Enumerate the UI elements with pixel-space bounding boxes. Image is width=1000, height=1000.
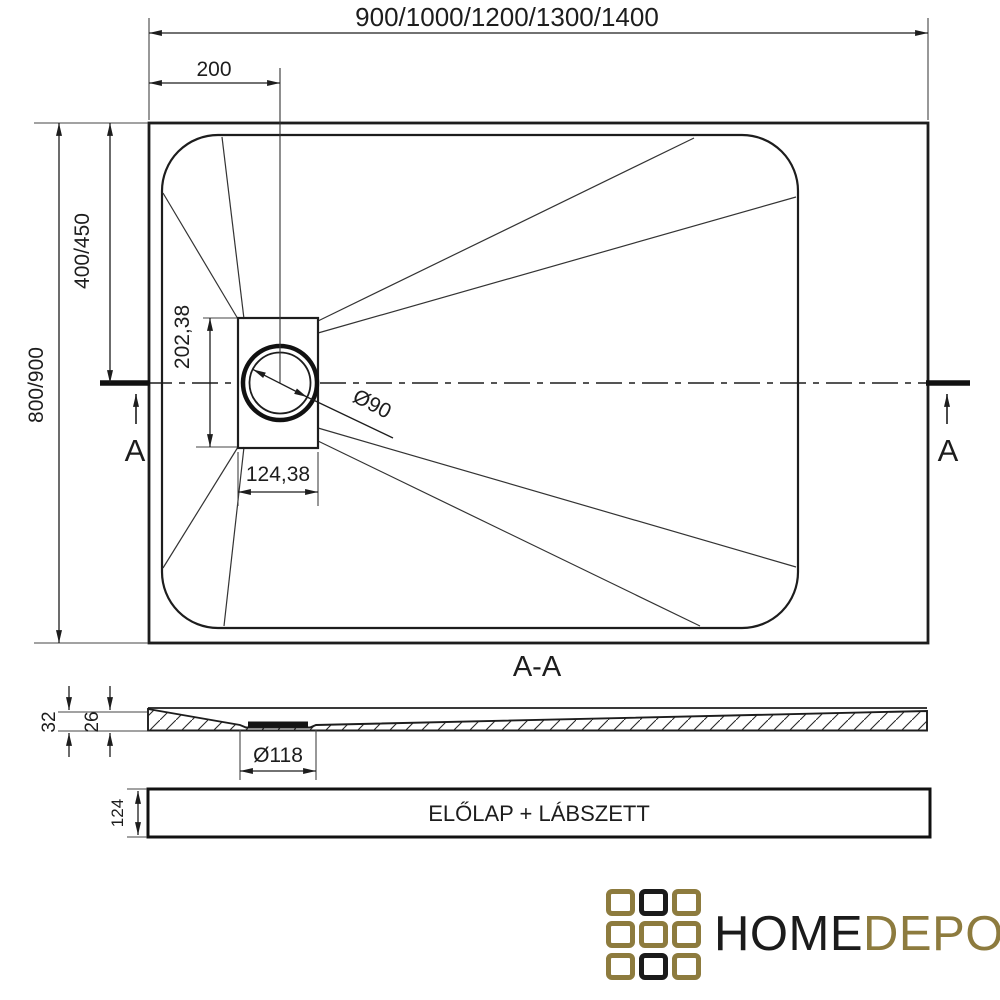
dim-drain-offset: 200 [149,58,280,83]
crease-line [318,441,700,626]
logo-word-home: HOME [714,907,863,961]
dim-thickness-group: 32 26 [39,686,147,757]
tray-basin-outline [162,135,798,628]
logo-grid-cell [606,921,635,948]
crease-line [318,138,694,321]
dim-overall-length-label: 900/1000/1200/1300/1400 [355,2,659,32]
logo-grid-cell [672,921,701,948]
dim-recess-diameter: Ø118 [240,730,316,780]
logo-grid-cell [639,921,668,948]
dim-width-half-label: 400/450 [71,213,94,289]
dim-drain-offset-label: 200 [196,58,231,81]
dim-drain-unit-height: 202,38 [171,305,237,447]
section-view: A-A 32 26 Ø118 [39,651,927,780]
section-marker-label-right: A [938,433,959,468]
section-title: A-A [513,651,562,683]
panel-view: ELŐLAP + LÁBSZETT 124 [108,789,930,837]
dim-panel-height-label: 124 [108,799,127,827]
crease-line [163,447,238,568]
dim-width-total-label: 800/900 [25,347,48,423]
dim-drain-unit-height-label: 202,38 [171,305,194,369]
dim-inner-thickness-label: 26 [82,711,103,732]
section-marker-label-left: A [125,433,146,468]
dim-drain-diameter-label: Ø90 [349,385,395,424]
dim-recess-diameter-label: Ø118 [253,744,303,767]
logo-grid-cell [606,889,635,916]
brand-logo: HOMEDEPO [606,889,1000,980]
dim-drain-diameter: Ø90 [253,370,395,439]
crease-line [318,197,796,333]
crease-line [163,193,238,319]
logo-grid-cell [639,953,668,980]
dim-drain-unit-width-label: 124,38 [246,463,310,486]
logo-grid-icon [606,889,701,980]
logo-grid-cell [639,889,668,916]
crease-line [318,428,796,567]
slope-crease-lines [163,137,796,626]
drawing-canvas: A A 900/1000/1200/1300/1400 200 800/900 … [0,0,1000,1000]
panel-label: ELŐLAP + LÁBSZETT [428,801,650,826]
logo-wordmark: HOMEDEPO [714,910,1000,959]
dim-drain-unit-width: 124,38 [238,452,318,506]
logo-grid-cell [606,953,635,980]
dim-edge-thickness-label: 32 [39,711,60,732]
shower-tray-technical-drawing: A A 900/1000/1200/1300/1400 200 800/900 … [0,0,1000,1000]
dim-overall-length: 900/1000/1200/1300/1400 [149,2,928,120]
crease-line [222,137,244,319]
logo-word-depo: DEPO [863,907,1000,961]
logo-grid-cell [672,889,701,916]
drain-cover-bar [248,722,308,728]
crease-line [224,447,244,626]
logo-grid-cell [672,953,701,980]
plan-view: A A 900/1000/1200/1300/1400 200 800/900 … [25,2,970,643]
